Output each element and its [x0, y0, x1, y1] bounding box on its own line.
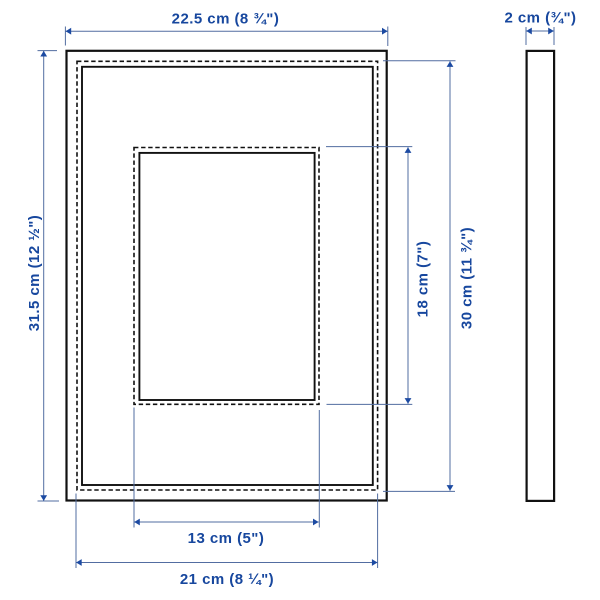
svg-text:2 cm (¾"): 2 cm (¾")	[504, 9, 576, 26]
svg-text:30 cm (11 ¾"): 30 cm (11 ¾")	[459, 227, 476, 329]
svg-text:18 cm (7"): 18 cm (7")	[415, 241, 432, 318]
svg-text:13 cm (5"): 13 cm (5")	[188, 530, 265, 547]
svg-text:21 cm (8 ¼"): 21 cm (8 ¼")	[180, 571, 274, 588]
svg-text:22.5 cm (8 ¾"): 22.5 cm (8 ¾")	[172, 11, 280, 28]
svg-text:31.5 cm (12 ½"): 31.5 cm (12 ½")	[26, 215, 43, 331]
